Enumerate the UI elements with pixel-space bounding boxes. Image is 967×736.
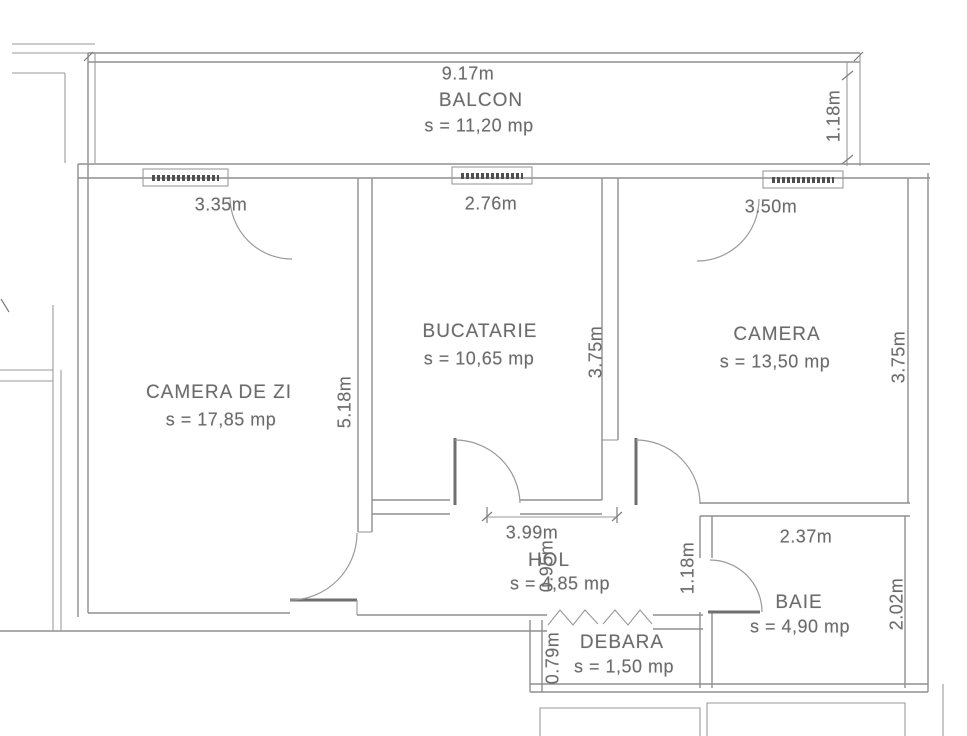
area-label-balcon: s = 11,20 mp <box>424 116 533 137</box>
area-label-bucatarie: s = 10,65 mp <box>424 349 535 370</box>
area-label-debara: s = 1,50 mp <box>574 657 674 678</box>
dimension-debara-depth: 0.79m <box>543 632 564 685</box>
dimension-hol-passage: 0.95m <box>537 540 558 593</box>
dimension-hol-depth: 1.18m <box>678 542 699 595</box>
neighbor-wall-top-left <box>12 44 95 163</box>
window-bucatarie <box>452 167 532 184</box>
room-label-balcon: BALCON <box>439 90 523 112</box>
accordion-door-debara <box>548 610 652 625</box>
camera-bottom-wall <box>700 503 910 516</box>
window-camera <box>763 171 843 188</box>
area-label-hol: s = 4,85 mp <box>510 574 610 595</box>
dimension-baie-depth: 2.02m <box>887 578 908 631</box>
wall-camera-de-zi-bucatarie <box>358 178 372 532</box>
dimension-camera-depth: 3.75m <box>889 331 910 384</box>
dimension-balcon-width: 9.17m <box>442 64 495 85</box>
dimension-camera-de-zi-depth: 5.18m <box>335 376 356 429</box>
area-label-camera: s = 13,50 mp <box>720 352 831 373</box>
room-label-camera: CAMERA <box>733 324 820 346</box>
door-hol-baie <box>708 560 762 612</box>
door-camera-hol <box>636 438 700 505</box>
dimension-bucatarie-depth: 3.75m <box>586 326 607 379</box>
door-bucatarie-hol <box>455 438 520 505</box>
dimension-camera-de-zi-window: 3.35m <box>195 195 248 216</box>
dimension-baie-width: 2.37m <box>780 527 833 548</box>
dimension-bucatarie-window: 2.76m <box>465 194 518 215</box>
dimension-camera-window: 3.50m <box>745 197 798 218</box>
room-label-bucatarie: BUCATARIE <box>423 321 538 343</box>
right-wall <box>908 173 943 736</box>
dimension-balcon-depth: 1.18m <box>824 90 845 143</box>
room-label-camera-de-zi: CAMERA DE ZI <box>146 382 292 404</box>
room-label-debara: DEBARA <box>580 632 664 654</box>
bottom-walls <box>0 613 703 631</box>
lower-structures <box>540 703 905 736</box>
area-label-camera-de-zi: s = 17,85 mp <box>166 410 277 431</box>
room-label-baie: BAIE <box>775 592 822 614</box>
floor-plan: 9.17m BALCON s = 11,20 mp 1.18m 3.35m 2.… <box>0 0 967 736</box>
hol-width-dimension-line <box>482 507 622 523</box>
door-camera-de-zi-hol <box>290 533 357 615</box>
left-wall <box>0 164 88 630</box>
area-label-baie: s = 4,90 mp <box>750 617 850 638</box>
